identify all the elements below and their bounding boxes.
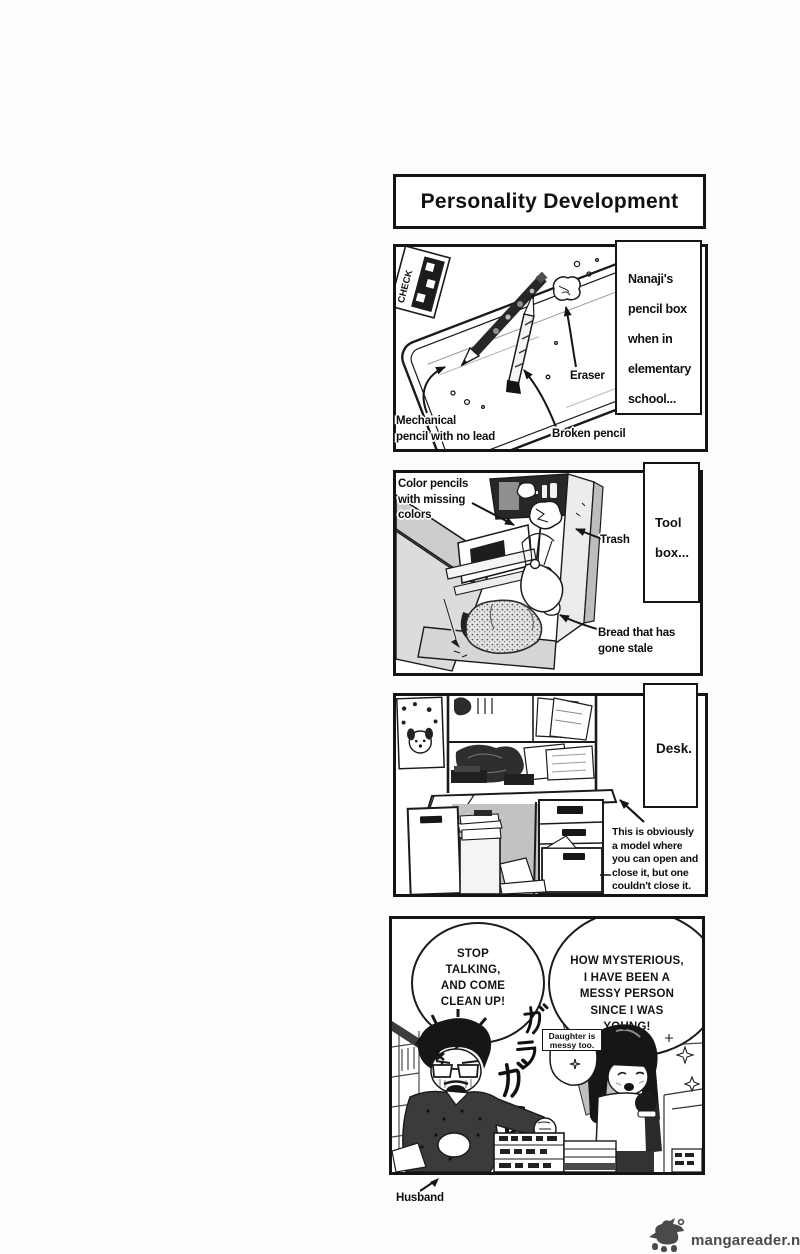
label-trash: Trash (600, 532, 630, 548)
caption-desk: Desk. (643, 683, 698, 808)
stale-bread (466, 600, 542, 653)
drawer-unit (539, 800, 603, 894)
label-mechanical-pencil: Mechanical pencil with no lead (396, 413, 495, 445)
caption-line: elementary (628, 354, 700, 384)
watermark: mangareader.net (648, 1218, 800, 1252)
strip-title-text: Personality Development (421, 190, 679, 214)
upper-shelf-clutter (454, 697, 592, 740)
caption-line: Tool (655, 508, 698, 538)
caption-line: Nanaji's (628, 264, 700, 294)
label-eraser: Eraser (570, 368, 605, 384)
lower-shelf-clutter (451, 744, 594, 785)
dog-poster (397, 697, 444, 769)
arrow-to-desk (620, 800, 644, 822)
caption-line: school... (628, 384, 700, 414)
left-cabinet-door (408, 807, 461, 894)
label-bread: Bread that has gone stale (598, 625, 675, 657)
eraser-shape (553, 277, 580, 300)
watermark-text: mangareader.net (691, 1232, 800, 1252)
caption-tool-box: Tool box... (643, 462, 700, 603)
manga-page: Personality Development (0, 0, 800, 1254)
husband-arrow (416, 1176, 444, 1192)
bubble-wife: STOP TALKING, AND COME CLEAN UP! (410, 946, 536, 1010)
label-husband: Husband (396, 1190, 444, 1206)
caption-line: when in (628, 324, 700, 354)
strip-title: Personality Development (393, 174, 706, 229)
middle-cabinet (458, 810, 502, 894)
caption-line: pencil box (628, 294, 700, 324)
label-color-pencils: Color pencils with missing colors (398, 477, 468, 524)
right-small-boxes (672, 1149, 702, 1172)
caption-line: box... (655, 538, 698, 568)
mangareader-bird-icon (648, 1218, 688, 1252)
check-card: CHECK (396, 247, 450, 318)
bubble-daughter: HOW MYSTERIOUS, I HAVE BEEN A MESSY PERS… (548, 953, 706, 1036)
label-broken-pencil: Broken pencil (552, 426, 625, 442)
daughter-tag-box: Daughter is messy too. (542, 1029, 602, 1051)
caption-pencil-box: Nanaji's pencil box when in elementary s… (615, 240, 702, 415)
note-desk-model: This is obviously a model where you can … (612, 826, 698, 894)
